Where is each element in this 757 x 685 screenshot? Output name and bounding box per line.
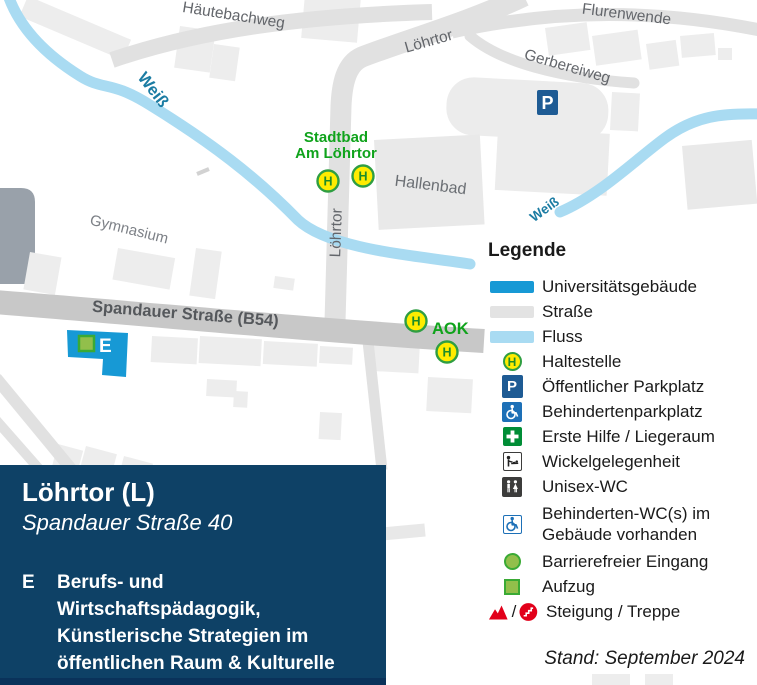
legend-item: Aufzug — [486, 574, 754, 599]
p-letter: P — [502, 375, 523, 398]
river-swatch — [486, 331, 538, 343]
h-letter: H — [442, 346, 451, 360]
legend-title: Legende — [488, 240, 754, 262]
legend-item: Universitätsgebäude — [486, 274, 754, 299]
legend-item: / Steigung / Treppe — [486, 599, 754, 624]
entry-line: öffentlichen Raum & Kulturelle — [57, 650, 370, 677]
building — [263, 341, 318, 367]
building-e-label: E — [99, 336, 112, 357]
legend-item-label: Barrierefreier Eingang — [542, 551, 708, 572]
legend-item: Erste Hilfe / Liegeraum — [486, 424, 754, 449]
legend-item-label: Öffentlicher Parkplatz — [542, 376, 704, 397]
legend-item-label: Behinderten-WC(s) im Gebäude vorhanden — [542, 503, 752, 545]
building — [273, 276, 294, 291]
stop-label-aok: AOK — [432, 320, 469, 338]
legend-item: Behindertenparkplatz — [486, 399, 754, 424]
building — [718, 48, 732, 60]
legend-item: Barrierefreier Eingang — [486, 549, 754, 574]
bus-stop-icon: H — [353, 166, 374, 187]
site-title: Löhrtor (L) — [22, 477, 370, 507]
building — [495, 128, 610, 196]
legend-item-label: Haltestelle — [542, 351, 621, 372]
building — [319, 346, 353, 365]
stop-label-stadtbad-1: Stadtbad — [304, 129, 368, 146]
infobox-bottom-strip — [0, 678, 386, 685]
building — [151, 336, 198, 364]
p-letter: P — [541, 93, 553, 113]
street-swatch — [486, 306, 538, 318]
legend-item: Wickelgelegenheit — [486, 449, 754, 474]
building — [545, 22, 590, 56]
unisex-wc-icon — [486, 477, 538, 497]
building — [426, 377, 473, 413]
legend-item: Straße — [486, 299, 754, 324]
building — [592, 30, 642, 66]
entry-line: Künstlerische Strategien im — [57, 623, 370, 650]
first-aid-icon — [486, 427, 538, 446]
legend-item: P Öffentlicher Parkplatz — [486, 374, 754, 399]
legend-item-label: Wickelgelegenheit — [542, 451, 680, 472]
building-entry-key: E — [22, 569, 57, 685]
baby-change-icon — [486, 452, 538, 471]
building-entry-description: Berufs- und Wirtschaftspädagogik, Künstl… — [57, 569, 370, 685]
building-entry: E Berufs- und Wirtschaftspädagogik, Küns… — [22, 569, 370, 685]
place-label-gymnasium: Gymnasium — [88, 212, 170, 248]
map-date-note: Stand: September 2024 — [544, 648, 745, 670]
building — [645, 674, 673, 685]
building — [189, 248, 221, 299]
h-letter: H — [358, 170, 367, 184]
legend-item-label: Universitätsgebäude — [542, 276, 697, 297]
bridge — [197, 169, 209, 174]
building — [680, 33, 716, 58]
bus-stop-icon: H — [318, 171, 339, 192]
legend-item-label: Behindertenparkplatz — [542, 401, 703, 422]
legend-item: H Haltestelle — [486, 349, 754, 374]
legend-item-label: Fluss — [542, 326, 583, 347]
street-label-flurenwende: Flurenwende — [581, 1, 672, 29]
legend-item: Fluss — [486, 324, 754, 349]
building — [112, 248, 175, 290]
legend-item-label: Erste Hilfe / Liegeraum — [542, 426, 715, 447]
building — [209, 44, 239, 81]
parking-icon: P — [486, 375, 538, 398]
parking-icon: P — [537, 90, 558, 115]
building — [646, 40, 679, 70]
legend-item: Behinderten-WC(s) im Gebäude vorhanden — [486, 499, 754, 549]
building — [319, 412, 342, 440]
slope-icon — [488, 603, 509, 621]
legend: Legende Universitätsgebäude Straße Fluss… — [486, 240, 754, 624]
building — [682, 140, 757, 210]
legend-item-label: Aufzug — [542, 576, 595, 597]
building — [610, 92, 640, 131]
legend-item-label: Straße — [542, 301, 593, 322]
bus-stop-icon: H — [486, 352, 538, 371]
slash-separator: / — [512, 602, 517, 622]
campus-map-page: E Häutebachweg Flurenwende Löhrtor Gerbe… — [0, 0, 757, 685]
site-address: Spandauer Straße 40 — [22, 509, 370, 537]
university-swatch — [486, 281, 538, 293]
building — [233, 391, 248, 408]
h-letter: H — [411, 315, 420, 329]
street-label-lohrtor-vertical: Löhrtor — [327, 208, 346, 258]
accessible-wc-icon — [486, 515, 538, 534]
elevator-icon — [486, 579, 538, 595]
building — [23, 252, 61, 295]
street-stub-east — [382, 530, 425, 534]
legend-item-label: Unisex-WC — [542, 476, 628, 497]
university-building-e — [67, 330, 128, 377]
entry-line: Berufs- und Wirtschaftspädagogik, — [57, 569, 370, 623]
elevator-icon — [79, 336, 94, 351]
site-infobox: Löhrtor (L) Spandauer Straße 40 E Berufs… — [0, 465, 386, 685]
river-label-weiss-east: Weiß — [527, 194, 562, 225]
building — [592, 674, 630, 685]
building — [199, 336, 262, 366]
street-southwest-1 — [0, 378, 72, 470]
accessible-parking-icon — [486, 402, 538, 422]
bus-stop-icon: H — [406, 311, 427, 332]
accessible-entrance-icon — [486, 553, 538, 570]
bus-stop-icon: H — [437, 342, 458, 363]
legend-item: Unisex-WC — [486, 474, 754, 499]
h-letter: H — [323, 175, 332, 189]
legend-item-label: Steigung / Treppe — [546, 601, 680, 622]
stairs-icon — [519, 602, 538, 622]
building — [206, 379, 237, 398]
h-letter: H — [503, 352, 522, 371]
stop-label-stadtbad-2: Am Löhrtor — [295, 145, 377, 162]
